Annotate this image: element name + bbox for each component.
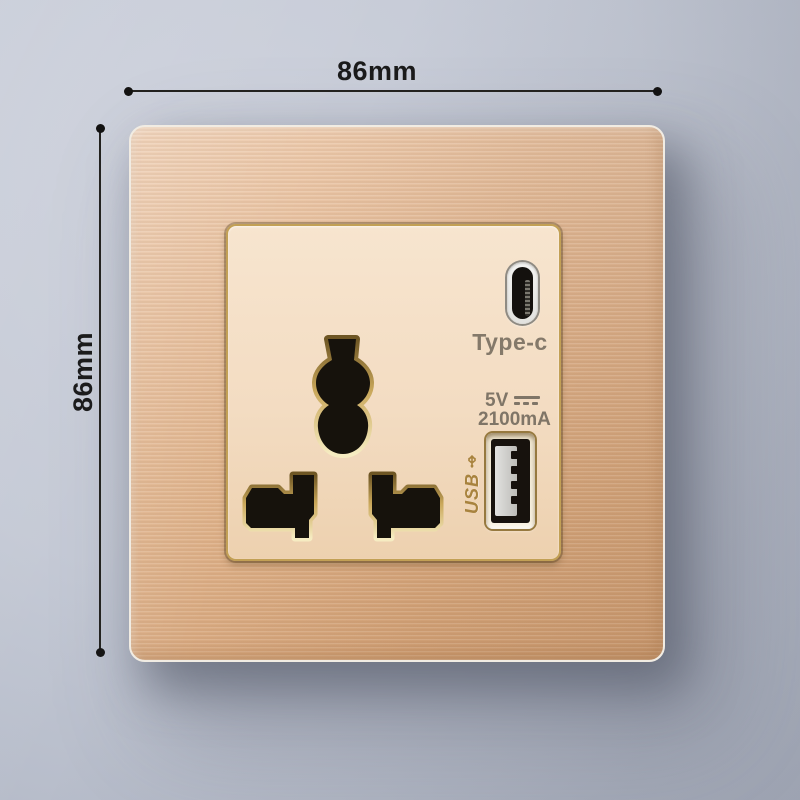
dimension-endpoint-dot [124, 87, 133, 96]
earth-pin-hole [316, 339, 370, 454]
height-dimension-line [99, 128, 101, 652]
dimension-endpoint-dot [96, 124, 105, 133]
type-c-label: Type-c [460, 329, 560, 356]
pin-hole-right [372, 475, 440, 538]
usb-a-port-cavity [491, 439, 530, 523]
usb-print-label: USB [462, 473, 483, 514]
dimension-endpoint-dot [96, 648, 105, 657]
spec-voltage: 5V [485, 391, 508, 410]
socket-module-panel: Type-c 5V 2100mA [226, 224, 561, 561]
usb-a-contacts [511, 451, 520, 504]
dc-voltage-icon [514, 396, 540, 405]
usb-spec-print: 5V 2100mA [478, 391, 560, 429]
height-dimension-label: 86mm [68, 292, 98, 452]
usb-a-tongue [495, 446, 517, 516]
width-dimension-line [128, 90, 658, 92]
width-dimension-label: 86mm [297, 56, 457, 87]
pin-hole-left [246, 475, 314, 538]
type-c-connector-tab [525, 280, 530, 316]
usb-print: USB [462, 443, 482, 523]
wall-socket-plate: Type-c 5V 2100mA [129, 125, 665, 662]
type-c-port[interactable] [507, 262, 538, 324]
usb-trident-icon [466, 452, 478, 468]
type-c-port-cavity [512, 267, 533, 319]
spec-current: 2100mA [478, 410, 560, 429]
dimension-endpoint-dot [653, 87, 662, 96]
usb-a-port[interactable] [486, 433, 535, 529]
